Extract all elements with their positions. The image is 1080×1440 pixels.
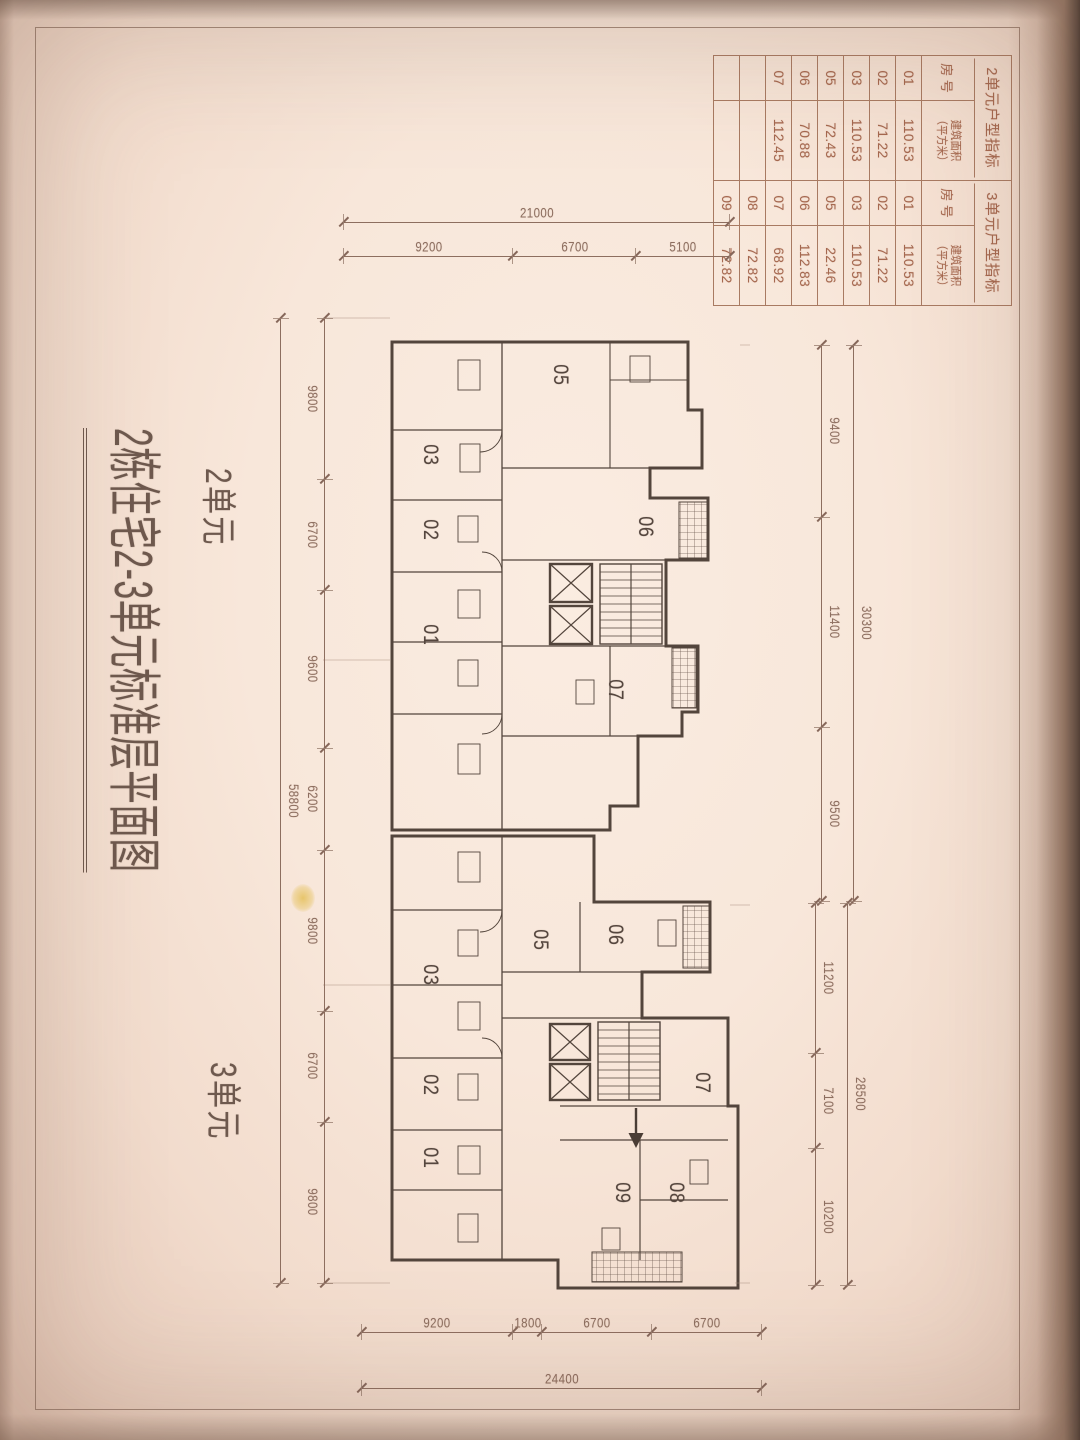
dim-value: 6700 <box>305 1053 320 1080</box>
dim-value: 6200 <box>305 785 320 812</box>
dim-extension <box>317 479 333 480</box>
dim-extension <box>840 1285 856 1286</box>
photo-edge-shadow-bottom <box>0 1414 1080 1440</box>
dim-extension <box>343 214 344 230</box>
dim-line <box>280 318 281 1283</box>
dim-value: 9200 <box>424 1316 451 1331</box>
elevator-core-unit3 <box>550 1024 590 1100</box>
table-row: 01110.53 <box>895 56 921 180</box>
room-number-2单元-06: 06 <box>633 516 657 538</box>
dim-extension <box>635 248 636 264</box>
dim-line <box>815 903 816 1285</box>
unit3-table-title: 3单元户型指标 <box>974 183 1011 302</box>
area-value-cell: 71.22 <box>870 101 895 180</box>
dim-extension <box>317 748 333 749</box>
dim-value: 11200 <box>821 961 836 994</box>
dim-extension <box>361 1324 362 1340</box>
area-col-header: 建筑面积 （平方米） <box>922 105 974 176</box>
dim-line <box>344 222 730 223</box>
dim-value: 58800 <box>286 783 301 817</box>
area-value-cell: 70.88 <box>792 101 817 180</box>
area-value-cell: 22.46 <box>818 226 843 305</box>
dim-line <box>362 1332 762 1333</box>
dim-extension <box>273 1283 289 1284</box>
area-value-cell: 110.53 <box>844 101 869 180</box>
dim-value: 28500 <box>853 1077 868 1111</box>
table-row: 0522.46 <box>817 181 843 305</box>
dim-value: 9600 <box>305 655 320 682</box>
table-row: 0670.88 <box>791 56 817 180</box>
entrance-arrow-icon <box>629 1108 644 1148</box>
photo-edge-shadow-left <box>0 0 14 1440</box>
dim-line <box>362 1388 762 1389</box>
dim-value: 9800 <box>305 1189 320 1216</box>
dim-extension <box>317 1122 333 1123</box>
room-number-3单元-01: 01 <box>418 1147 442 1169</box>
table-row <box>714 56 739 180</box>
unit2-table-title: 2单元户型指标 <box>974 58 1011 177</box>
dim-extension <box>840 903 856 904</box>
dim-value: 9400 <box>827 418 842 445</box>
room-number-cell: 01 <box>896 56 921 101</box>
dim-extension <box>651 1324 652 1340</box>
dim-value: 11400 <box>827 605 842 638</box>
room-number-3单元-07: 07 <box>690 1072 714 1094</box>
room-number-cell: 07 <box>766 56 791 101</box>
dim-line <box>344 256 730 257</box>
balcony-hatch <box>679 502 707 558</box>
room-number-2单元-03: 03 <box>418 444 442 466</box>
unit-type-table: 2单元户型指标 房 号 建筑面积 （平方米） 01110.530271.2203… <box>713 55 1012 305</box>
table-row: 0872.82 <box>739 181 765 305</box>
dim-extension <box>512 248 513 264</box>
dim-value: 24400 <box>545 1372 579 1387</box>
dim-extension <box>808 1148 824 1149</box>
elevator-core-unit2 <box>550 564 592 644</box>
room-col-header: 房 号 <box>922 56 974 101</box>
area-value-cell <box>740 101 765 180</box>
table-row: 0271.22 <box>869 56 895 180</box>
unit3-table: 3单元户型指标 房 号 建筑面积 （平方米） 01110.530271.2203… <box>713 180 1012 306</box>
room-number-cell: 08 <box>740 181 765 226</box>
dim-extension <box>814 517 830 518</box>
area-value-cell: 72.43 <box>818 101 843 180</box>
dim-line <box>324 318 325 1283</box>
room-number-cell: 03 <box>844 56 869 101</box>
table-row: 03110.53 <box>843 181 869 305</box>
room-number-cell <box>714 56 739 101</box>
room-number-2单元-01: 01 <box>418 624 442 646</box>
dim-extension <box>808 1053 824 1054</box>
photo-edge-shadow-top <box>0 0 1080 20</box>
dim-value: 6700 <box>584 1316 611 1331</box>
room-number-cell <box>740 56 765 101</box>
area-col-header: 建筑面积 （平方米） <box>922 230 974 301</box>
dim-value: 6700 <box>561 240 588 255</box>
stairs-unit3 <box>598 1022 660 1100</box>
drawing-sheet: 2单元户型指标 房 号 建筑面积 （平方米） 01110.530271.2203… <box>0 0 1080 1440</box>
area-value-cell: 72.82 <box>740 226 765 305</box>
room-number-3单元-08: 08 <box>664 1182 688 1204</box>
room-number-3单元-06: 06 <box>603 924 627 946</box>
room-number-cell: 09 <box>714 181 739 226</box>
paper-stain <box>291 884 315 912</box>
balcony-hatch <box>592 1252 682 1282</box>
dim-extension <box>317 1283 333 1284</box>
dim-extension <box>317 1011 333 1012</box>
area-value-cell: 71.22 <box>870 226 895 305</box>
dim-extension <box>761 1380 762 1396</box>
room-number-2单元-07: 07 <box>603 679 627 701</box>
dim-value: 1800 <box>514 1316 541 1331</box>
floor-plan-linework <box>320 300 750 1320</box>
dim-extension <box>814 727 830 728</box>
drawing-title: 2栋住宅2-3单元标准层平面图 <box>83 428 178 873</box>
room-number-3单元-02: 02 <box>418 1074 442 1096</box>
dim-extension <box>814 345 830 346</box>
table-row: 0768.92 <box>765 181 791 305</box>
dim-value: 21000 <box>520 206 554 221</box>
area-value-cell: 110.53 <box>844 226 869 305</box>
table-row: 03110.53 <box>843 56 869 180</box>
unit3-table-rows: 01110.530271.2203110.530522.4606112.8307… <box>714 181 921 305</box>
dim-value: 6700 <box>693 1316 720 1331</box>
room-number-3单元-03: 03 <box>418 964 442 986</box>
dim-value: 9500 <box>827 800 842 827</box>
dim-value: 10200 <box>821 1200 836 1234</box>
dim-extension <box>846 345 862 346</box>
dim-value: 9800 <box>305 917 320 944</box>
dim-value: 9800 <box>305 385 320 412</box>
dim-value: 6700 <box>305 521 320 548</box>
unit3-label: 3单元 <box>200 1062 252 1141</box>
room-number-cell: 07 <box>766 181 791 226</box>
room-number-cell: 05 <box>818 181 843 226</box>
unit2-table-rows: 01110.530271.2203110.530572.430670.88071… <box>714 56 921 180</box>
dim-extension <box>317 318 333 319</box>
room-number-2单元-02: 02 <box>418 519 442 541</box>
area-value-cell: 112.45 <box>766 101 791 180</box>
dim-extension <box>512 1324 513 1340</box>
area-value-cell <box>714 101 739 180</box>
table-row: 0271.22 <box>869 181 895 305</box>
unit3-plan <box>392 836 738 1288</box>
area-value-cell: 68.92 <box>766 226 791 305</box>
dim-extension <box>317 850 333 851</box>
room-number-cell: 03 <box>844 181 869 226</box>
table-row <box>739 56 765 180</box>
unit2-plan <box>392 342 708 830</box>
dim-line <box>853 345 854 901</box>
photo-background: 2单元户型指标 房 号 建筑面积 （平方米） 01110.530271.2203… <box>0 0 1080 1440</box>
dim-extension <box>317 590 333 591</box>
dim-extension <box>761 1324 762 1340</box>
area-value-cell: 110.53 <box>896 101 921 180</box>
balcony-hatch <box>672 648 696 708</box>
table-row: 0572.43 <box>817 56 843 180</box>
room-number-cell: 02 <box>870 181 895 226</box>
balcony-hatch <box>683 906 709 968</box>
dim-value: 9200 <box>415 240 442 255</box>
dim-line <box>821 345 822 901</box>
dim-extension <box>343 248 344 264</box>
room-col-header: 房 号 <box>922 181 974 226</box>
room-number-cell: 06 <box>792 56 817 101</box>
room-number-3单元-09: 09 <box>610 1182 634 1204</box>
room-number-3单元-05: 05 <box>528 929 552 951</box>
dim-extension <box>808 1285 824 1286</box>
table-row: 01110.53 <box>895 181 921 305</box>
room-number-cell: 06 <box>792 181 817 226</box>
dim-extension <box>361 1380 362 1396</box>
photo-edge-shadow-right <box>1008 0 1080 1440</box>
table-row: 07112.45 <box>765 56 791 180</box>
dim-extension <box>273 318 289 319</box>
unit2-table: 2单元户型指标 房 号 建筑面积 （平方米） 01110.530271.2203… <box>713 55 1012 181</box>
area-value-cell: 110.53 <box>896 226 921 305</box>
dim-value: 5100 <box>670 240 697 255</box>
dim-value: 7100 <box>821 1087 836 1114</box>
unit2-label: 2单元 <box>195 468 247 547</box>
room-number-cell: 05 <box>818 56 843 101</box>
dim-extension <box>808 903 824 904</box>
area-value-cell: 112.83 <box>792 226 817 305</box>
room-number-cell: 01 <box>896 181 921 226</box>
dim-value: 30300 <box>859 606 874 640</box>
area-value-cell: 72.82 <box>714 226 739 305</box>
table-row: 0972.82 <box>714 181 739 305</box>
table-row: 06112.83 <box>791 181 817 305</box>
room-number-cell: 02 <box>870 56 895 101</box>
stairs-unit2 <box>600 564 662 644</box>
dim-line <box>847 903 848 1285</box>
dim-extension <box>729 214 730 230</box>
room-number-2单元-05: 05 <box>548 364 572 386</box>
dim-extension <box>729 248 730 264</box>
